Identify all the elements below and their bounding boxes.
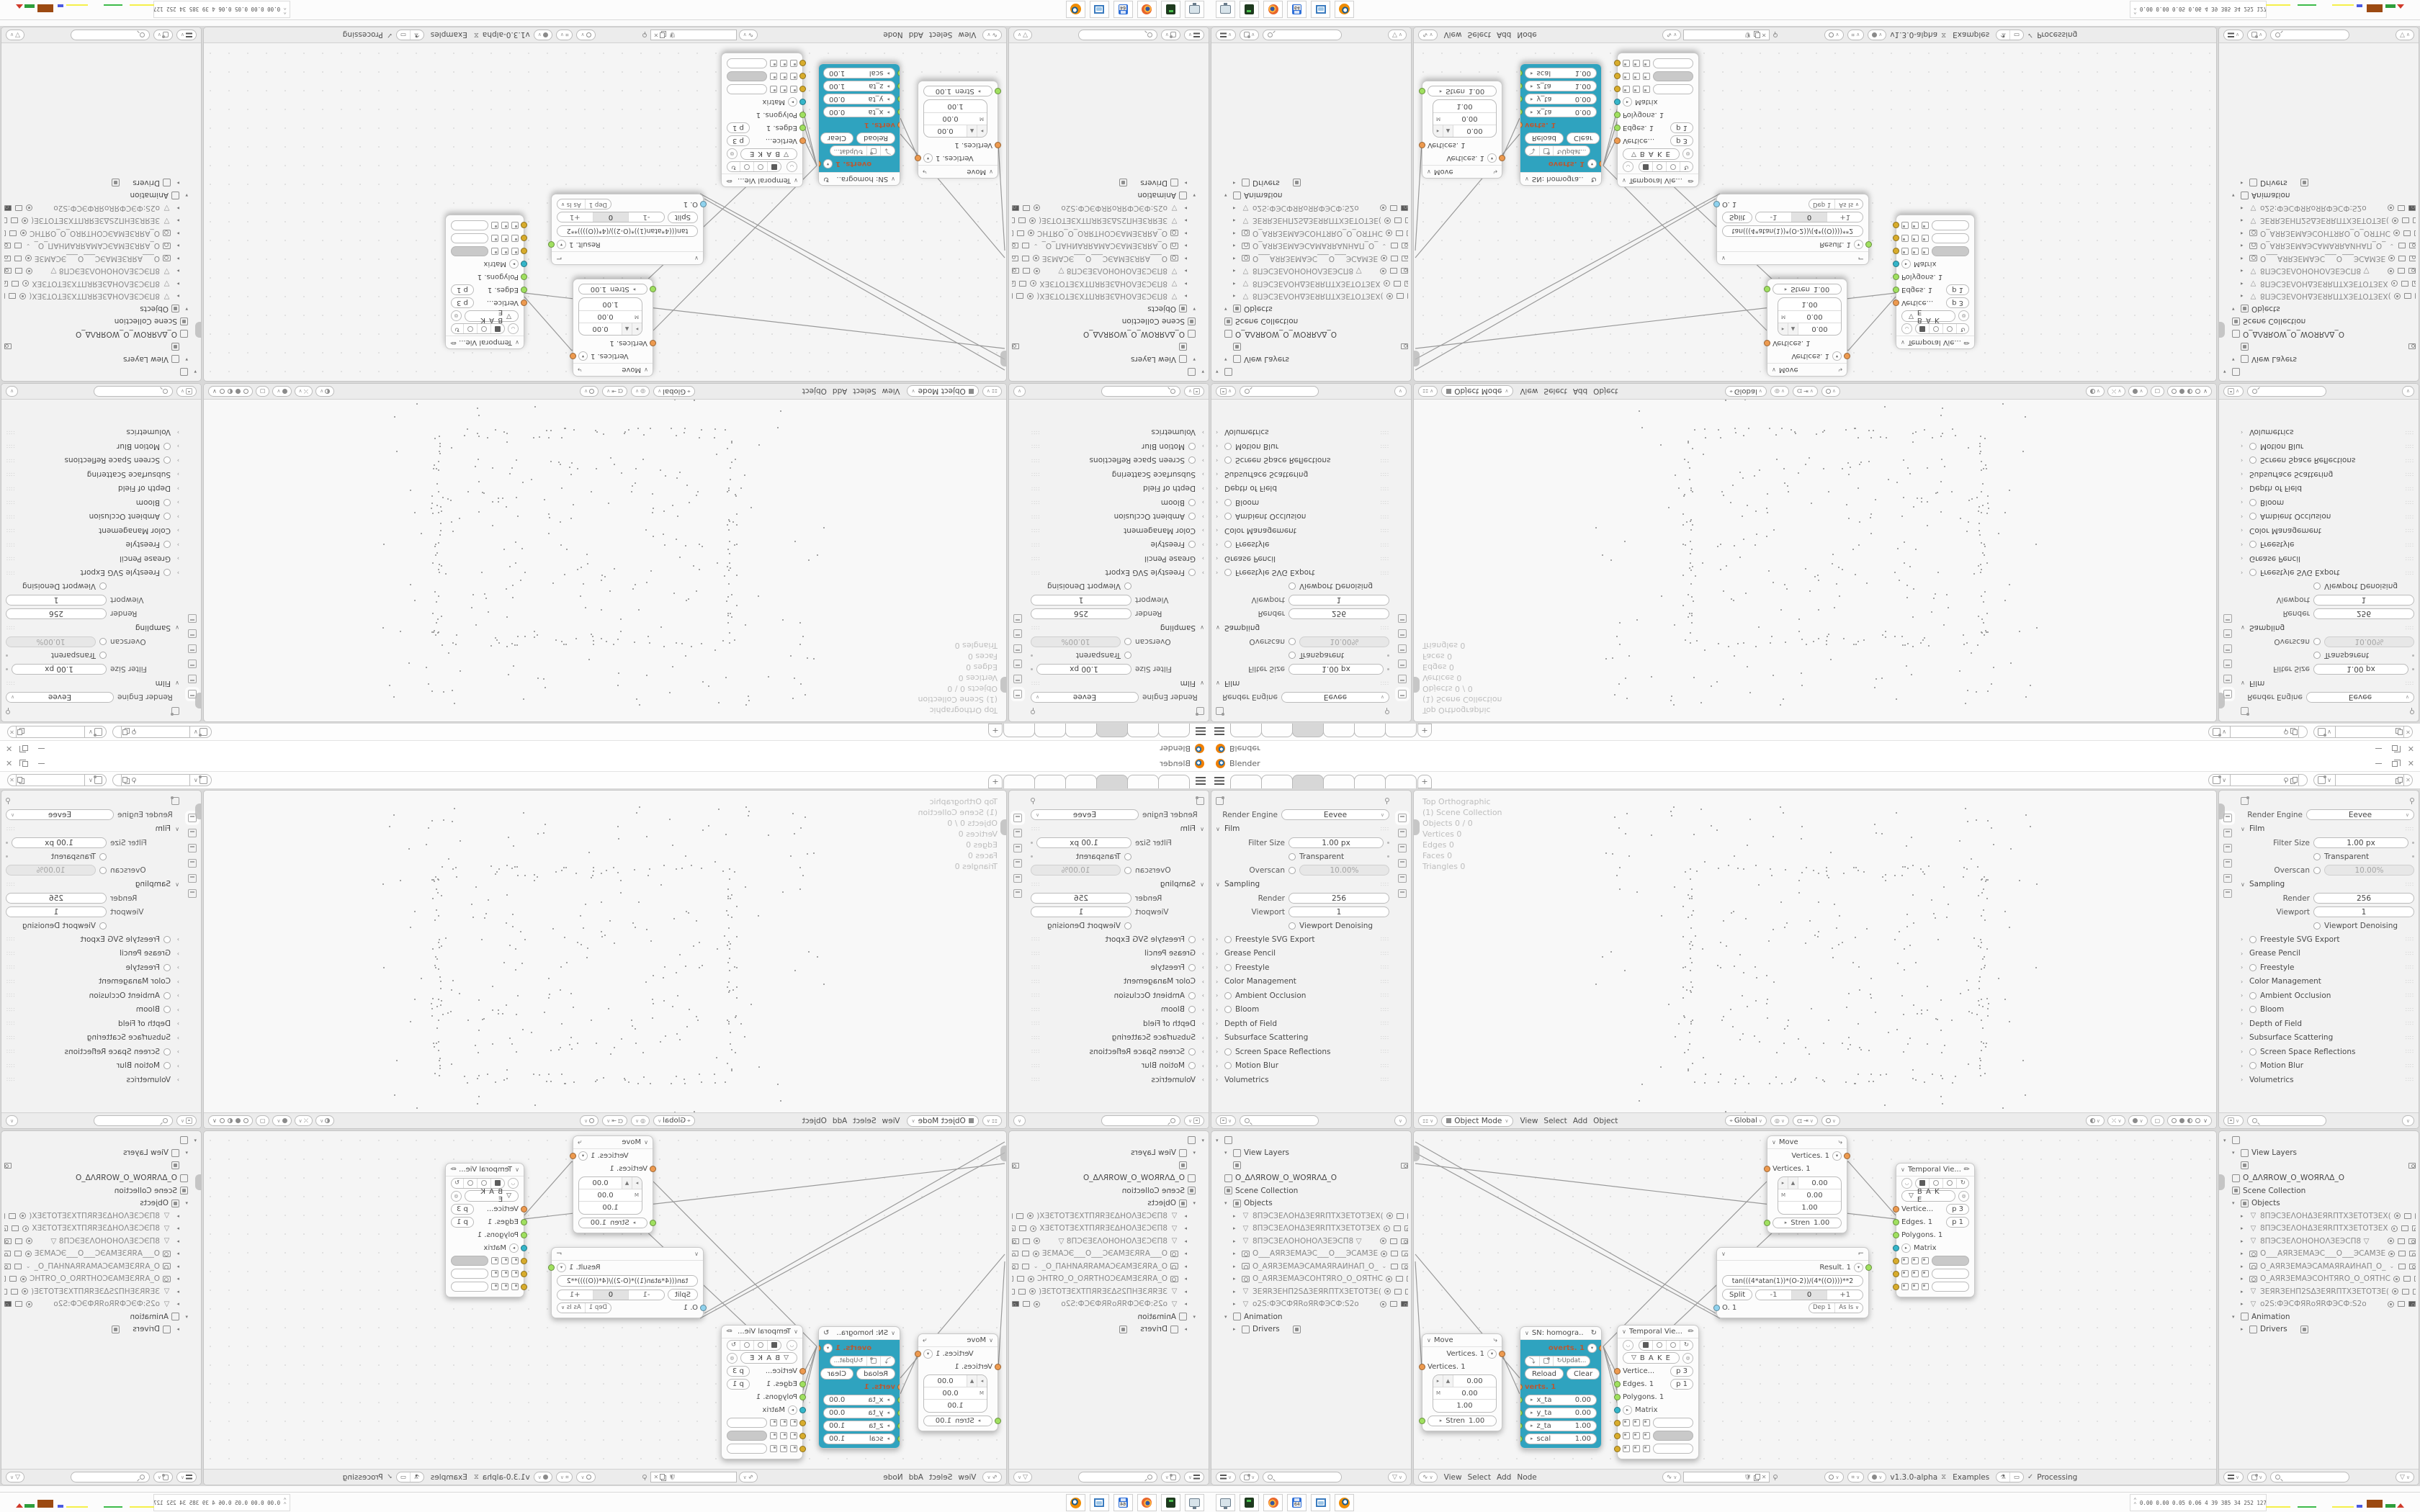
- hide-icon[interactable]: [22, 1288, 28, 1295]
- hide-icon[interactable]: [22, 1225, 29, 1232]
- screen-toggle-icon[interactable]: [2398, 256, 2406, 261]
- screen-toggle-icon[interactable]: [12, 1225, 19, 1231]
- render-engine-dropdown[interactable]: Eevee: [6, 692, 114, 703]
- hide-icon[interactable]: [1380, 1301, 1386, 1308]
- tree-type-button[interactable]: ∿∨: [1662, 1472, 1682, 1482]
- socket-menu-button[interactable]: ▾: [1487, 1349, 1497, 1359]
- view-layers-row[interactable]: ▾View Layers: [1012, 1147, 1204, 1160]
- render-tab-icon[interactable]: [1398, 675, 1407, 683]
- screen-toggle-icon[interactable]: [1022, 256, 1029, 261]
- socket-verts-in[interactable]: [897, 122, 900, 129]
- outliner-search-input[interactable]: [1078, 30, 1157, 40]
- object-row[interactable]: ▸ ▽ 8ПЭСЗЕΛОНΔЗЕЯRПТХЗЕТОТЗЕХ ⌄: [2223, 1223, 2416, 1236]
- socket-vertices-out[interactable]: [1499, 156, 1505, 162]
- world-tab-icon[interactable]: [2223, 889, 2232, 898]
- socket-param[interactable]: [1520, 1397, 1523, 1403]
- hide-icon[interactable]: [1028, 230, 1034, 236]
- socket-vertices[interactable]: [799, 138, 806, 145]
- node-temporal-viewer-lower[interactable]: ∨Temporal Vie...✏ ◡↻ ▽B A K E◎ Vertice..…: [721, 1325, 803, 1459]
- collapsed-section[interactable]: › Depth of Field ∷∷: [1031, 1017, 1204, 1031]
- socket-matrix[interactable]: [1614, 1407, 1621, 1413]
- outliner-search-input[interactable]: [2270, 1472, 2349, 1482]
- collapsed-section[interactable]: › Bloom ∷∷: [1216, 495, 1389, 510]
- socket-object-in[interactable]: [700, 1305, 707, 1311]
- view-layers-row[interactable]: ▾View Layers: [2223, 353, 2416, 366]
- screen-toggle-icon[interactable]: [2398, 1301, 2405, 1307]
- mode-dropdown[interactable]: Object Mode∨: [1441, 386, 1513, 397]
- socket-matrix[interactable]: [799, 1407, 806, 1413]
- render-toggle-icon[interactable]: [1402, 256, 1408, 261]
- collapsed-section[interactable]: › Grease Pencil ∷∷: [2241, 947, 2414, 961]
- screen-toggle-icon[interactable]: [14, 256, 22, 261]
- collapsed-section[interactable]: › Grease Pencil ∷∷: [6, 552, 179, 566]
- screen-toggle-icon[interactable]: [9, 1276, 17, 1282]
- ring-icon[interactable]: [740, 1341, 753, 1350]
- grid-icon[interactable]: [790, 1419, 797, 1426]
- socket-menu-button[interactable]: ▾: [923, 1349, 933, 1359]
- edit-icon[interactable]: [866, 147, 880, 156]
- pencil-icon[interactable]: ✏: [1688, 176, 1694, 184]
- ring-icon[interactable]: [1930, 325, 1943, 334]
- node-temporal-viewer-upper[interactable]: ∨Temporal Vie...✏ ◡↻ ▽B A K E◎ Vertice..…: [445, 215, 524, 349]
- socket-result-out[interactable]: [1865, 242, 1872, 248]
- drivers-row[interactable]: ▸Drivers: [4, 1323, 197, 1336]
- socket-polygons[interactable]: [799, 1394, 806, 1400]
- overscan-field[interactable]: 10.00%: [2324, 865, 2414, 876]
- exclude-icon[interactable]: [1012, 1163, 1019, 1169]
- sampling-viewport-field[interactable]: 1: [1289, 906, 1389, 917]
- socket-polygons[interactable]: [1614, 112, 1621, 119]
- grid-icon[interactable]: [511, 222, 519, 229]
- screen-toggle-icon[interactable]: [14, 243, 22, 248]
- socket-menu-button[interactable]: ▾: [1587, 160, 1597, 169]
- region-toggle-handle[interactable]: [195, 804, 202, 819]
- transparent-checkbox[interactable]: [1124, 853, 1131, 860]
- hide-icon[interactable]: [1384, 217, 1391, 224]
- socket-polygons[interactable]: [521, 1232, 527, 1238]
- render-toggle-icon[interactable]: [1404, 281, 1408, 287]
- menu-item[interactable]: Add: [906, 1473, 926, 1482]
- animation-group-row[interactable]: ▾Animation: [2223, 1310, 2416, 1323]
- palette-icon[interactable]: [1912, 248, 1919, 255]
- screen-toggle-icon[interactable]: [11, 1289, 18, 1295]
- render-engine-dropdown[interactable]: Eevee: [2306, 692, 2414, 703]
- render-tab-icon[interactable]: [1398, 829, 1407, 837]
- np-icon[interactable]: [770, 1445, 777, 1452]
- node-formula[interactable]: ∨⌐ Result. 1▾ tan(((4*atan(1))*(O-2))/(4…: [551, 1247, 704, 1318]
- copy-icon[interactable]: [660, 32, 666, 38]
- collapsed-section[interactable]: › Volumetrics ∷∷: [1031, 1073, 1204, 1087]
- object-row[interactable]: ▸ ▽ ЗЕЯRЗЕНП2SΔЗЕЯRПТХЗЕТОТЗЕ( ⌄: [1012, 215, 1204, 228]
- copy-icon[interactable]: [2290, 729, 2296, 735]
- filter-size-field[interactable]: 1.00 px: [1289, 664, 1384, 675]
- render-toggle-icon[interactable]: [4, 256, 11, 261]
- render-toggle-icon[interactable]: [1405, 217, 1408, 223]
- node-move-upper[interactable]: ∨Move⤷ Vertices. 1▾ Vertices. 1 ▸▲0.00 M…: [573, 1135, 653, 1233]
- display-toggle-group[interactable]: ↻: [727, 1340, 781, 1351]
- exclude-icon[interactable]: [1401, 343, 1408, 349]
- hide-icon[interactable]: [1384, 1225, 1390, 1232]
- vector-widget[interactable]: ▸▲0.00 M0.00 1.00: [1778, 1176, 1842, 1215]
- socket-vert-color[interactable]: [799, 1420, 806, 1426]
- render-toggle-icon[interactable]: [1401, 268, 1408, 274]
- world-tab-icon[interactable]: [1013, 889, 1022, 898]
- hide-icon[interactable]: [26, 268, 32, 274]
- palette-icon[interactable]: [1633, 1445, 1640, 1452]
- edge-color-field[interactable]: [451, 233, 488, 243]
- grid-icon[interactable]: [511, 235, 519, 242]
- chevron-down-icon[interactable]: ⌄: [1381, 243, 1387, 249]
- collapsed-section[interactable]: › Freestyle ∷∷: [2241, 960, 2414, 975]
- object-row[interactable]: ▸ ▽ О_АЯRЗЕМАЭСАМАЯRАИНАП_О_ ⌄: [1012, 240, 1204, 253]
- rendered-icon[interactable]: [2195, 1118, 2200, 1123]
- sampling-viewport-field[interactable]: 1: [2313, 906, 2414, 917]
- edge-color-field[interactable]: [1653, 71, 1693, 81]
- view-layer-tab-icon[interactable]: [188, 644, 197, 653]
- palette-icon[interactable]: [1633, 60, 1640, 67]
- render-tab-icon[interactable]: [188, 829, 197, 837]
- curve-icon[interactable]: ⤵: [1525, 1356, 1540, 1366]
- material-icon[interactable]: [228, 389, 233, 394]
- viewport-denoising-checkbox[interactable]: [1289, 922, 1296, 930]
- cube-icon[interactable]: [767, 1341, 781, 1350]
- view-layer-selector[interactable]: ∨ ✕: [2313, 774, 2413, 786]
- properties-options-button[interactable]: ∨: [2402, 386, 2414, 397]
- param-field[interactable]: ▸scal1.00: [1525, 68, 1597, 79]
- object-row[interactable]: ▸ ▽ ЗЕЯRЗЕНП2SΔЗЕЯRПТХЗЕТОТЗЕ( ⌄: [1216, 215, 1408, 228]
- scene-tab-icon[interactable]: [188, 874, 197, 883]
- screen-toggle-icon[interactable]: [1019, 281, 1026, 287]
- face-color-field[interactable]: [451, 220, 488, 230]
- palette-icon[interactable]: [501, 235, 508, 242]
- menu-item[interactable]: Select: [926, 31, 955, 40]
- ring-icon[interactable]: [477, 1179, 490, 1188]
- param-field[interactable]: ▸scal1.00: [823, 1434, 895, 1444]
- transform-orientation-dropdown[interactable]: ⌖Global∨: [1725, 386, 1767, 397]
- close-button[interactable]: ✕: [6, 745, 12, 752]
- copy-icon[interactable]: [660, 1474, 666, 1480]
- scene-name-field[interactable]: [2231, 774, 2299, 786]
- xray-button[interactable]: ∨: [272, 386, 291, 397]
- palette-icon[interactable]: [1633, 73, 1640, 80]
- properties-search-input[interactable]: [94, 1115, 173, 1126]
- collapsed-section[interactable]: › Screen Space Reflections ∷∷: [2241, 1045, 2414, 1059]
- render-toggle-icon[interactable]: [1401, 1301, 1408, 1307]
- hide-icon[interactable]: [2393, 1276, 2400, 1282]
- collapsed-section[interactable]: › Bloom ∷∷: [2241, 1003, 2414, 1017]
- curve-icon[interactable]: [1643, 86, 1650, 93]
- grid-icon[interactable]: [790, 1445, 797, 1452]
- tree-type-button[interactable]: ∿∨: [1662, 30, 1682, 40]
- section-film[interactable]: ∨Film∷∷: [1216, 822, 1389, 836]
- eye-icon[interactable]: ◡: [1901, 324, 1912, 335]
- world-row[interactable]: O_ΔΛЯROW_O_WOЯRΛΔ_O: [2223, 328, 2416, 341]
- object-row[interactable]: ▸ ▽ ЗЕЯRЗЕНП2SΔЗЕЯRПТХЗЕТОТЗЕ( ⌄: [4, 215, 197, 228]
- display-settings-app-icon[interactable]: [1216, 1, 1235, 18]
- menu-item[interactable]: View: [879, 387, 903, 396]
- object-row[interactable]: ▸ ▽ 8ПЭСЗЕΛОНОНОΛЗЕЭСП8 ▽ ⌄: [1216, 1235, 1408, 1248]
- hide-icon[interactable]: [2388, 1301, 2394, 1308]
- object-row[interactable]: ▸ ▽ О___АЯRЗЕМАЭС___О___ЭСАМЗЕ ⌄: [1012, 252, 1204, 265]
- grid-icon[interactable]: [1901, 235, 1909, 242]
- shading-mode-group[interactable]: ∨: [208, 386, 253, 397]
- screen-toggle-icon[interactable]: [2398, 1251, 2406, 1256]
- socket-edges[interactable]: [799, 125, 806, 132]
- grid-icon[interactable]: [1901, 1283, 1909, 1290]
- collapsed-section[interactable]: › Motion Blur ∷∷: [6, 439, 179, 454]
- vertices-badge[interactable]: p 3: [451, 1204, 474, 1215]
- menu-item[interactable]: Select: [926, 1473, 955, 1482]
- socket-vertices-in[interactable]: [1764, 1166, 1770, 1172]
- properties-options-button[interactable]: ∨: [6, 386, 18, 397]
- np-icon[interactable]: [1922, 1270, 1929, 1277]
- overlays-button[interactable]: ⤫∨: [2107, 386, 2126, 397]
- editor-type-button[interactable]: ⚏∨: [1418, 1115, 1438, 1126]
- transparent-checkbox[interactable]: [1124, 652, 1131, 660]
- node-temporal-viewer-upper[interactable]: ∨Temporal Vie...✏ ◡↻ ▽B A K E◎ Vertice..…: [445, 1163, 524, 1297]
- grid-icon[interactable]: [1623, 1445, 1630, 1452]
- update-button[interactable]: ↻ Updat...: [1554, 147, 1590, 156]
- collapsed-section[interactable]: › Volumetrics ∷∷: [1216, 426, 1389, 440]
- bake-button[interactable]: ▽B A K E: [465, 310, 519, 322]
- screen-toggle-icon[interactable]: [9, 230, 17, 236]
- properties-search-input[interactable]: [1240, 1115, 1319, 1126]
- display-settings-app-icon[interactable]: [1185, 1, 1204, 18]
- screen-toggle-icon[interactable]: [2403, 1276, 2411, 1282]
- copy-icon[interactable]: [124, 729, 130, 735]
- render-toggle-icon[interactable]: [4, 243, 11, 248]
- refresh-icon[interactable]: ↻: [1680, 1341, 1693, 1350]
- grid-icon[interactable]: [790, 60, 797, 67]
- screen-toggle-icon[interactable]: [1022, 1251, 1029, 1256]
- socket-edge-color[interactable]: [521, 235, 527, 242]
- workspace-tab[interactable]: [1385, 775, 1417, 788]
- outliner-display-mode-button[interactable]: ∨: [176, 1472, 197, 1482]
- socket-param[interactable]: [1520, 84, 1523, 90]
- curve-icon[interactable]: ⤵: [880, 1356, 895, 1366]
- tool-tab-icon[interactable]: [1013, 814, 1022, 822]
- transform-orientation-dropdown[interactable]: ⌖Global∨: [653, 1115, 695, 1126]
- mode-dropdown[interactable]: Object Mode∨: [907, 386, 979, 397]
- output-tab-icon[interactable]: [1013, 844, 1022, 852]
- installer-64-app-icon[interactable]: [1113, 1, 1133, 18]
- outliner-scene-button[interactable]: ∨: [1240, 30, 1259, 40]
- hide-icon[interactable]: [1029, 217, 1036, 224]
- refresh-icon[interactable]: ↻: [1680, 163, 1693, 172]
- show-gizmo-button[interactable]: ∨: [2086, 1115, 2105, 1126]
- object-row[interactable]: ▸ ▽ ЗЕЯRЗЕНП2SΔЗЕЯRПТХЗЕТОТЗЕ( ⌄: [4, 1285, 197, 1298]
- socket-vertices[interactable]: [799, 1368, 806, 1374]
- material-icon[interactable]: [2187, 1118, 2192, 1123]
- section-sampling[interactable]: ∨Sampling∷∷: [1216, 877, 1389, 891]
- firefox-app-icon[interactable]: [1137, 1, 1157, 18]
- clear-button[interactable]: Clear: [820, 132, 853, 144]
- transparent-checkbox[interactable]: [2313, 652, 2321, 660]
- socket-vert-color[interactable]: [1614, 1420, 1621, 1426]
- object-row[interactable]: ▸ ▽ О_АЯRЗЕМАЭСАМАЯRАИНАП_О_ ⌄: [4, 1260, 197, 1273]
- system-monitor-readout[interactable]: ⌃⌃ 0.00 0.00 0.05 0.06 4 39 385 34 252 1…: [2130, 1, 2267, 18]
- properties-search-input[interactable]: [2247, 386, 2326, 397]
- render-tab-icon[interactable]: [1013, 675, 1022, 683]
- bake-button[interactable]: ▽B A K E: [1901, 1190, 1955, 1202]
- socket-param[interactable]: [897, 1423, 900, 1429]
- param-field[interactable]: ▸scal1.00: [823, 68, 895, 79]
- edges-badge[interactable]: p 1: [1946, 285, 1969, 296]
- display-settings-app-icon[interactable]: [1185, 1494, 1204, 1511]
- section-sampling[interactable]: ∨Sampling∷∷: [1031, 877, 1204, 891]
- socket-vertices-in[interactable]: [1764, 341, 1770, 347]
- transform-orientation-dropdown[interactable]: ⌖Global∨: [653, 386, 695, 397]
- region-toggle-handle[interactable]: [1413, 1146, 1420, 1161]
- refresh-icon[interactable]: ↻: [1591, 175, 1597, 183]
- gizmo-toggle-button[interactable]: ∨: [1824, 30, 1843, 40]
- param-field[interactable]: ▸y_ta0.00: [823, 94, 895, 105]
- param-field[interactable]: ▸x_ta0.00: [1525, 107, 1597, 118]
- cube-icon[interactable]: [490, 1179, 504, 1188]
- refresh-icon[interactable]: ↻: [823, 175, 829, 183]
- object-row[interactable]: ▸ ▽ 8ПЭСЗЕΛОНΔЗЕЯRПТХЗЕТОТЗЕХ( ⌄: [1012, 290, 1204, 303]
- proportional-edit-button[interactable]: ∨: [580, 386, 599, 397]
- socket-face-color[interactable]: [1614, 60, 1621, 67]
- shading-mode-group[interactable]: ∨: [208, 1115, 253, 1126]
- screen-toggle-icon[interactable]: [1017, 230, 1024, 236]
- world-row[interactable]: O_ΔΛЯROW_O_WOЯRΛΔ_O: [4, 328, 197, 341]
- outliner-display-mode-button[interactable]: ∨: [2223, 30, 2244, 40]
- editor-type-button[interactable]: ∨: [1216, 386, 1236, 397]
- hide-icon[interactable]: [20, 1276, 27, 1282]
- objects-group-row[interactable]: ▾Objects: [1012, 302, 1204, 315]
- workspace-tab[interactable]: [1292, 775, 1324, 788]
- render-toggle-icon[interactable]: [4, 205, 12, 211]
- object-row[interactable]: ▸ ▽ 8ПЭСЗЕΛОНΔЗЕЯRПТХЗЕТОТЗЕХ ⌄: [2223, 277, 2416, 290]
- render-toggle-icon[interactable]: [4, 1225, 8, 1231]
- outliner-filter-button[interactable]: ▽∨: [2396, 30, 2414, 40]
- formula-input[interactable]: tan(((4*atan(1))*(O-2))/(4*((O))))**2: [557, 225, 698, 237]
- socket-vertices-out[interactable]: [1499, 1351, 1505, 1357]
- palette-icon[interactable]: [1912, 235, 1919, 242]
- vector-widget[interactable]: ▸▲0.00 M0.00 1.00: [578, 297, 642, 336]
- param-field[interactable]: ▸z_ta1.00: [1525, 81, 1597, 92]
- object-row[interactable]: ▸ ▽ о2S:ФЭСФЯRоЯRФЭСФ:S2о ⌄: [4, 202, 197, 215]
- screenshot-tool-app-icon[interactable]: [1311, 1494, 1330, 1511]
- object-row[interactable]: ▸ ▽ О_АЯRЗЕМАЭСАМАЯRАИНАП_О_ ⌄: [1216, 1260, 1408, 1273]
- output-tab-icon[interactable]: [1398, 844, 1407, 852]
- menu-item[interactable]: View: [1441, 31, 1465, 40]
- menu-item[interactable]: View: [1517, 387, 1541, 396]
- vector-widget[interactable]: ▸▲0.00 M0.00 1.00: [1778, 297, 1842, 336]
- render-toggle-icon[interactable]: [1401, 1238, 1408, 1244]
- hide-icon[interactable]: [1029, 1288, 1036, 1295]
- pencil-icon[interactable]: ✏: [450, 1166, 456, 1174]
- drivers-row[interactable]: ▸Drivers: [4, 176, 197, 189]
- screen-toggle-icon[interactable]: [1394, 217, 1402, 223]
- sampling-viewport-field[interactable]: 1: [1289, 595, 1389, 606]
- wrap-dropdown[interactable]: As Is ∨: [1835, 1303, 1863, 1313]
- render-toggle-icon[interactable]: [2415, 1213, 2416, 1219]
- outliner-display-mode-button[interactable]: ∨: [1184, 30, 1204, 40]
- viewport-denoising-checkbox[interactable]: [1289, 583, 1296, 590]
- render-toggle-icon[interactable]: [4, 230, 6, 236]
- node-temporal-viewer-upper[interactable]: ∨Temporal Vie...✏ ◡↻ ▽B A K E◎ Vertice..…: [1896, 1163, 1975, 1297]
- close-button[interactable]: ✕: [2408, 745, 2414, 752]
- drivers-row[interactable]: ▸Drivers: [2223, 176, 2416, 189]
- display-toggle-group[interactable]: ↻: [1639, 1340, 1693, 1351]
- refresh-icon[interactable]: ↻: [823, 1329, 829, 1337]
- reload-button[interactable]: Reload: [1525, 132, 1564, 144]
- pivot-point-button[interactable]: ◎∨: [631, 386, 650, 397]
- socket-edges[interactable]: [799, 1381, 806, 1387]
- socket-param[interactable]: [897, 1436, 900, 1442]
- render-toggle-icon[interactable]: [4, 1213, 5, 1219]
- menu-item[interactable]: Add: [1570, 1117, 1590, 1125]
- socket-polygons[interactable]: [1893, 1232, 1899, 1238]
- wireframe-icon[interactable]: [243, 1118, 248, 1123]
- properties-search-input[interactable]: [1240, 386, 1319, 397]
- object-row[interactable]: ▸ ▽ О_АЯRЗЕМАЭСОНТЯRО_О_ОЯТНС ⌄: [2223, 1273, 2416, 1286]
- render-tab-icon[interactable]: [1013, 829, 1022, 837]
- rendered-icon[interactable]: [220, 1118, 225, 1123]
- reload-button[interactable]: Reload: [856, 132, 895, 144]
- render-tab-icon[interactable]: [2223, 675, 2232, 683]
- refresh-icon[interactable]: ↻: [1957, 1179, 1969, 1188]
- cube-icon[interactable]: [1639, 1341, 1653, 1350]
- screen-toggle-icon[interactable]: [15, 268, 22, 274]
- socket-vert-color[interactable]: [1893, 248, 1899, 255]
- palette-icon[interactable]: [780, 1432, 787, 1439]
- view-layers-row[interactable]: ▾View Layers: [4, 1147, 197, 1160]
- object-row[interactable]: ▸ ▽ 8ПЭСЗЕΛОНΔЗЕЯRПТХЗЕТОТЗЕХ ⌄: [4, 1223, 197, 1236]
- ring-icon[interactable]: [1653, 163, 1667, 172]
- grid-icon[interactable]: [511, 1283, 519, 1290]
- objects-group-row[interactable]: ▾Objects: [2223, 302, 2416, 315]
- menu-item[interactable]: Select: [850, 387, 879, 396]
- shading-solid-button[interactable]: ▢: [256, 386, 270, 397]
- display-toggle-group[interactable]: ↻: [727, 162, 781, 173]
- segment-button[interactable]: -1: [1756, 213, 1792, 222]
- object-row[interactable]: ▸ ▽ о2S:ФЭСФЯRоЯRФЭСФ:S2о ⌄: [1012, 202, 1204, 215]
- socket-matrix[interactable]: [521, 1245, 527, 1251]
- scene-collection-row[interactable]: Scene Collection: [2223, 315, 2416, 328]
- view-layer-field[interactable]: [2336, 726, 2404, 738]
- workspace-tab[interactable]: [1230, 775, 1262, 788]
- system-monitor-readout[interactable]: ⌃⌃ 0.00 0.00 0.05 0.06 4 39 385 34 252 1…: [153, 1, 290, 18]
- hide-icon[interactable]: [19, 1212, 26, 1219]
- proportional-edit-button[interactable]: ∨: [1821, 1115, 1840, 1126]
- outliner-search-input[interactable]: [2270, 30, 2349, 40]
- screen-toggle-icon[interactable]: [2402, 1289, 2409, 1295]
- view-layer-selector[interactable]: ∨ ✕: [7, 774, 107, 786]
- render-tab-icon[interactable]: [188, 675, 197, 683]
- palette-icon[interactable]: [1912, 1257, 1919, 1264]
- vector-widget[interactable]: ▸▲0.00 M0.00 1.00: [923, 1374, 987, 1413]
- screen-toggle-icon[interactable]: [2404, 293, 2411, 299]
- node-move-upper[interactable]: ∨Move⤷ Vertices. 1▾ Vertices. 1 ▸▲0.00 M…: [1767, 279, 1847, 377]
- solid-icon[interactable]: [236, 389, 241, 394]
- mode-dropdown[interactable]: Object Mode∨: [1441, 1115, 1513, 1127]
- ring-icon[interactable]: [463, 325, 477, 334]
- hide-icon[interactable]: [1027, 1212, 1034, 1219]
- collapsed-section[interactable]: › Screen Space Reflections ∷∷: [1031, 454, 1204, 468]
- editor-type-button[interactable]: ∨: [176, 1115, 197, 1126]
- workspace-tab[interactable]: [1385, 724, 1417, 737]
- collapsed-section[interactable]: › Depth of Field ∷∷: [1216, 482, 1389, 496]
- overscan-field[interactable]: 10.00%: [6, 865, 96, 876]
- socket-vert-color[interactable]: [521, 1258, 527, 1264]
- filter-size-field[interactable]: 1.00 px: [1289, 837, 1384, 848]
- edges-badge[interactable]: p 1: [1946, 1217, 1969, 1228]
- add-workspace-button[interactable]: +: [988, 775, 1003, 788]
- collapsed-section[interactable]: › Freestyle SVG Export ∷∷: [1216, 932, 1389, 947]
